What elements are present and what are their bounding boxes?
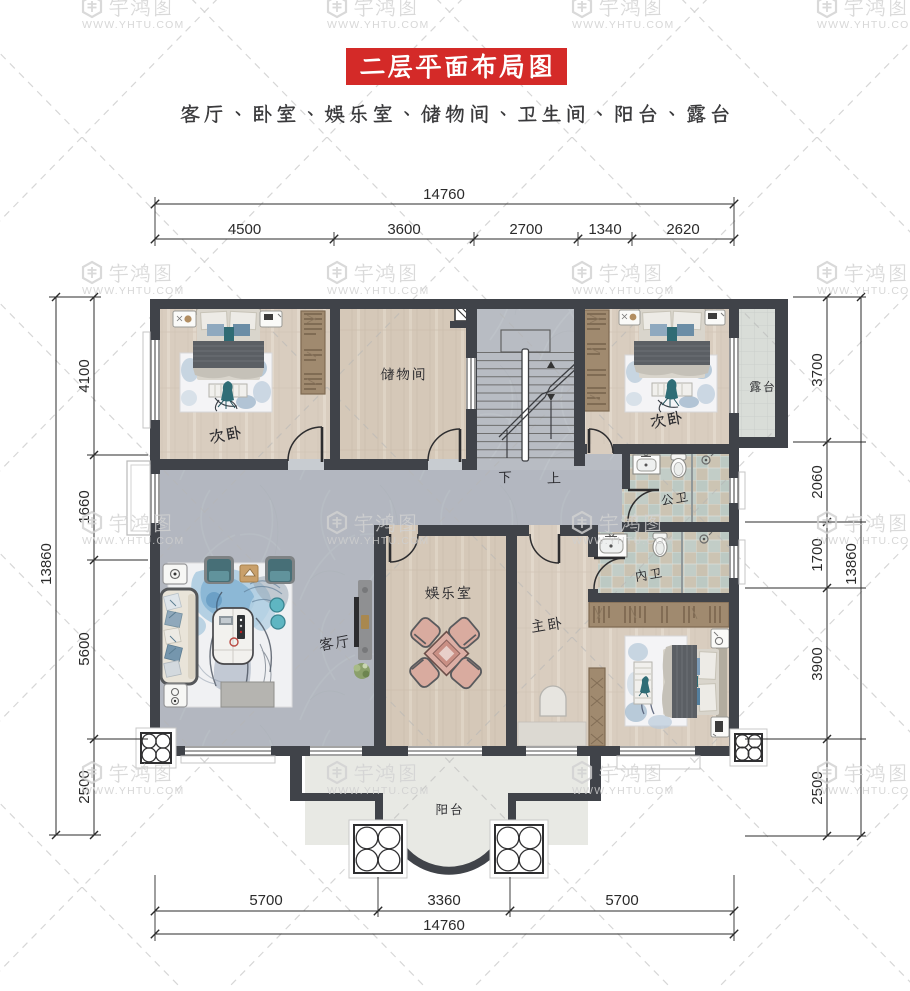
svg-text:1340: 1340 [588,221,621,238]
svg-text:4100: 4100 [76,359,93,392]
svg-text:13860: 13860 [843,543,860,585]
svg-text:2700: 2700 [509,221,542,238]
svg-text:2620: 2620 [666,221,699,238]
svg-text:14760: 14760 [423,917,465,934]
svg-text:3700: 3700 [809,353,826,386]
svg-text:4500: 4500 [228,221,261,238]
svg-text:5700: 5700 [249,892,282,909]
svg-text:3900: 3900 [809,647,826,680]
svg-text:2060: 2060 [809,465,826,498]
svg-text:3360: 3360 [427,892,460,909]
svg-text:5700: 5700 [605,892,638,909]
svg-text:1660: 1660 [76,490,93,523]
svg-text:14760: 14760 [423,186,465,203]
svg-text:5600: 5600 [76,632,93,665]
svg-text:13860: 13860 [38,543,55,585]
svg-text:3600: 3600 [387,221,420,238]
